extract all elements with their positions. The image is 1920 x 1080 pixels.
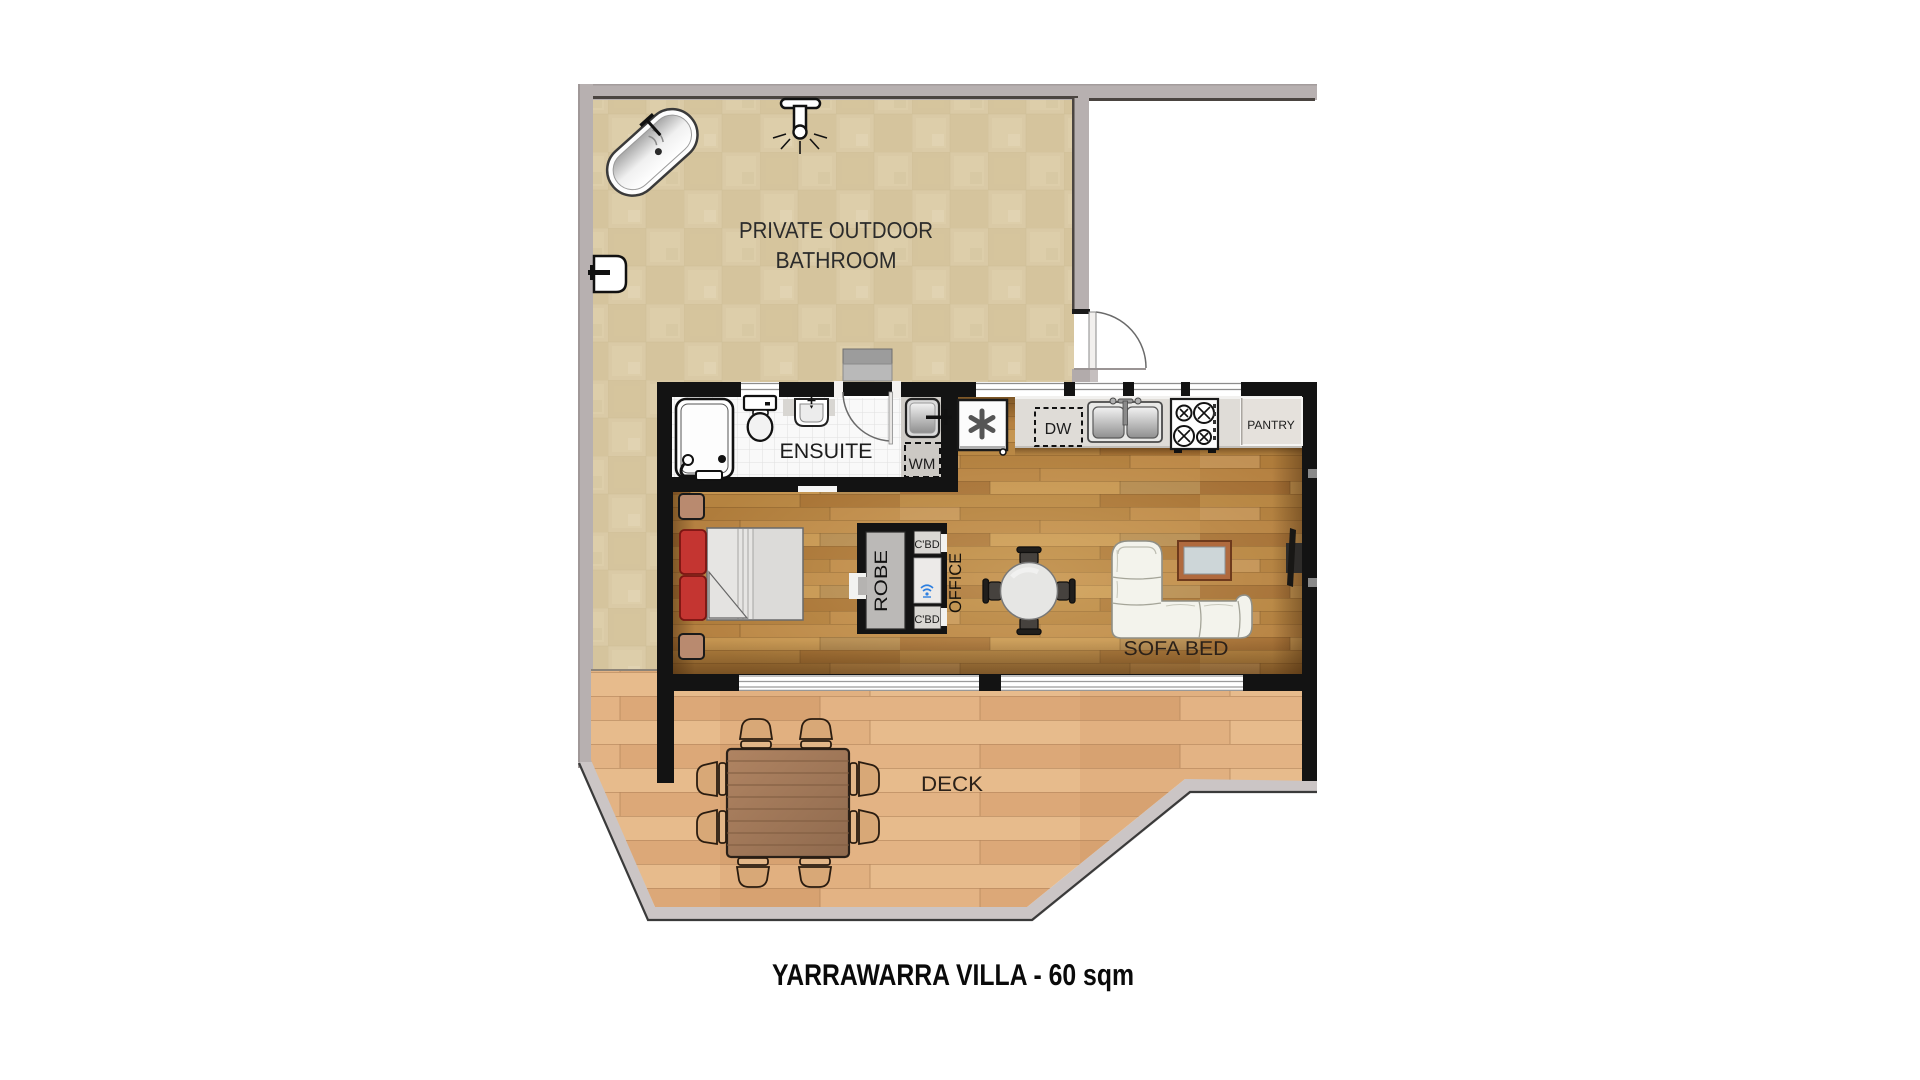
svg-text:SOFA BED: SOFA BED	[1124, 638, 1229, 660]
svg-text:OFFICE: OFFICE	[946, 553, 965, 613]
svg-text:C'BD: C'BD	[914, 614, 939, 626]
svg-text:WM: WM	[909, 456, 936, 473]
svg-text:ROBE: ROBE	[871, 550, 891, 612]
svg-text:DW: DW	[1045, 421, 1073, 438]
svg-text:PANTRY: PANTRY	[1247, 418, 1295, 432]
svg-text:YARRAWARRA VILLA - 60 sqm: YARRAWARRA VILLA - 60 sqm	[772, 959, 1134, 992]
svg-text:BATHROOM: BATHROOM	[776, 247, 897, 273]
svg-text:DECK: DECK	[921, 773, 983, 796]
svg-text:C'BD: C'BD	[914, 539, 939, 551]
svg-text:ENSUITE: ENSUITE	[780, 440, 873, 463]
svg-text:PRIVATE OUTDOOR: PRIVATE OUTDOOR	[739, 217, 933, 243]
